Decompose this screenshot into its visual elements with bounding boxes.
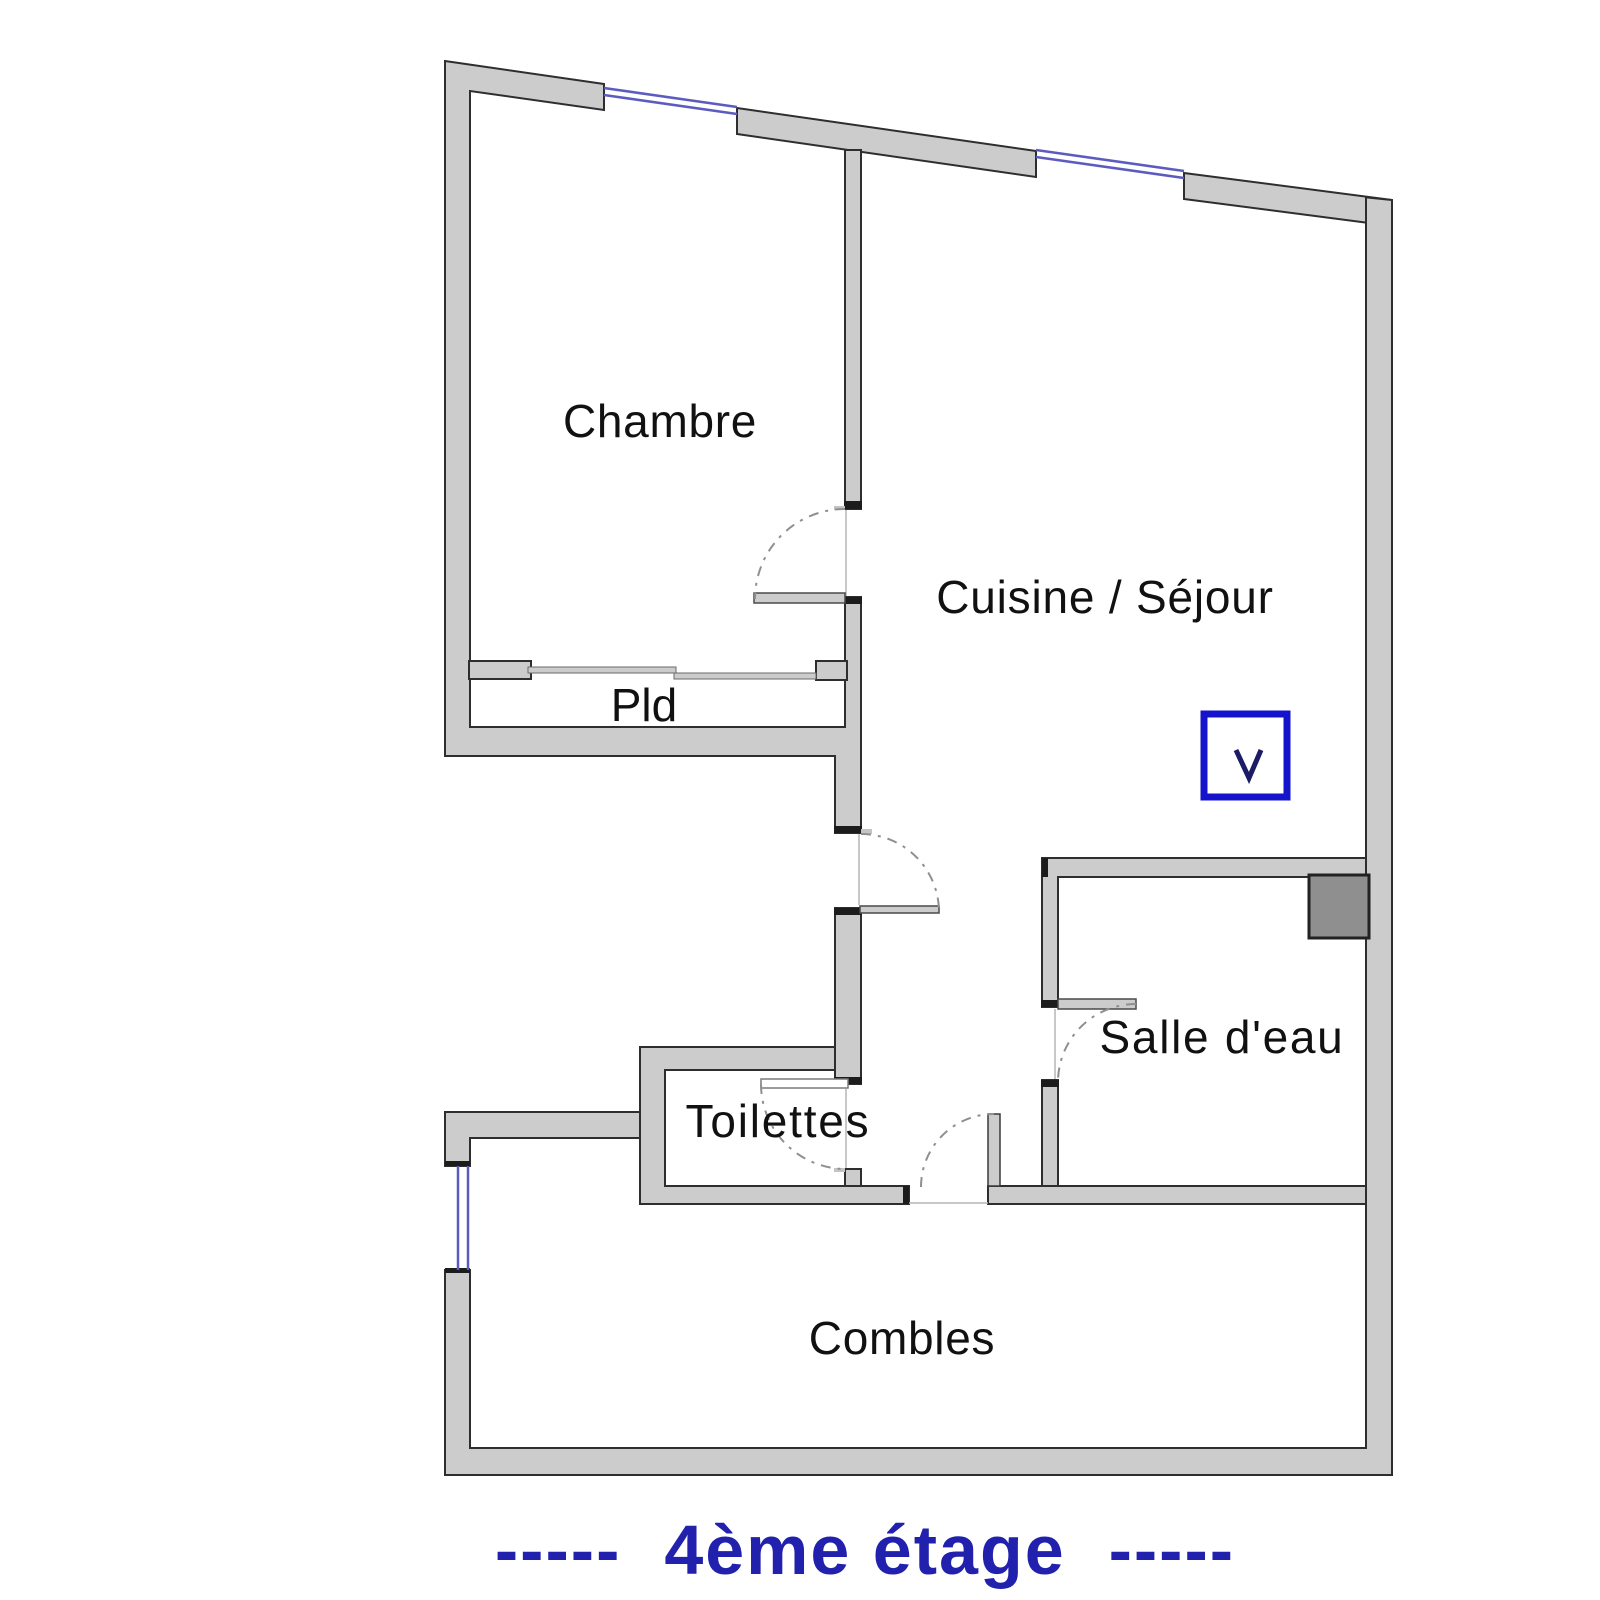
svg-text:----- 4ème étage -----: ----- 4ème étage ----- [495,1511,1235,1589]
svg-text:Cuisine / Séjour: Cuisine / Séjour [936,571,1274,623]
svg-text:Combles: Combles [809,1312,995,1364]
svg-text:Salle d'eau: Salle d'eau [1100,1011,1345,1063]
svg-text:Pld: Pld [611,679,677,731]
svg-text:Toilettes: Toilettes [686,1095,871,1147]
svg-text:Chambre: Chambre [563,395,757,447]
